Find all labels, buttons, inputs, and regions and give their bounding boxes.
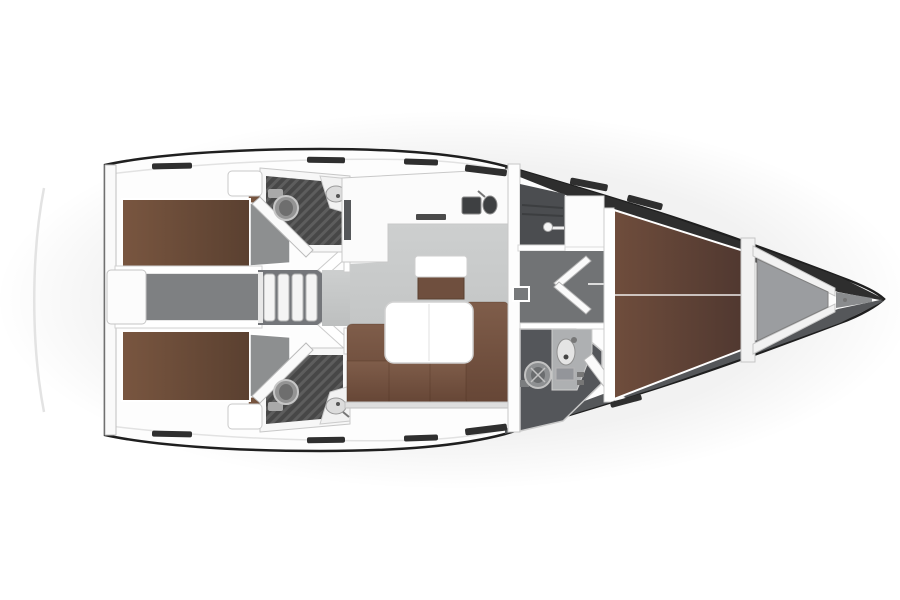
yacht-floorplan-svg <box>0 0 900 600</box>
companionway <box>258 270 322 325</box>
forestay-fitting <box>843 298 847 302</box>
oven-front <box>344 200 351 240</box>
step <box>278 274 289 321</box>
step <box>306 274 317 321</box>
corridor-floor <box>322 270 350 326</box>
step-edge <box>258 272 263 323</box>
shelf-unit <box>565 196 604 247</box>
hatch-icon <box>404 158 438 165</box>
stool-base <box>418 277 464 299</box>
stool-top <box>415 256 467 277</box>
double-berth <box>122 199 250 269</box>
aft-locker <box>107 270 146 324</box>
step <box>264 274 275 321</box>
bow-beam-vertical <box>741 238 755 362</box>
yacht-floorplan-image <box>0 0 900 600</box>
rail-knob <box>544 223 553 232</box>
wardrobe-wall <box>518 245 565 251</box>
engine-compartment <box>107 266 262 328</box>
hatch-icon <box>307 437 345 444</box>
mast-step-panel <box>513 287 529 301</box>
deck-locker-bottom <box>228 404 262 429</box>
stove-edge <box>416 214 446 220</box>
hatch-icon <box>152 431 192 438</box>
hatch-icon <box>307 157 345 164</box>
double-berth <box>122 331 250 401</box>
hatch-icon <box>404 434 438 441</box>
step <box>292 274 303 321</box>
sofa-front-edge <box>345 402 511 408</box>
berth-frame-wall <box>604 208 614 402</box>
head-wall <box>520 323 606 329</box>
engine-room-floor <box>146 274 262 320</box>
hatch-icon <box>152 163 192 170</box>
deck-locker-top <box>228 171 262 196</box>
